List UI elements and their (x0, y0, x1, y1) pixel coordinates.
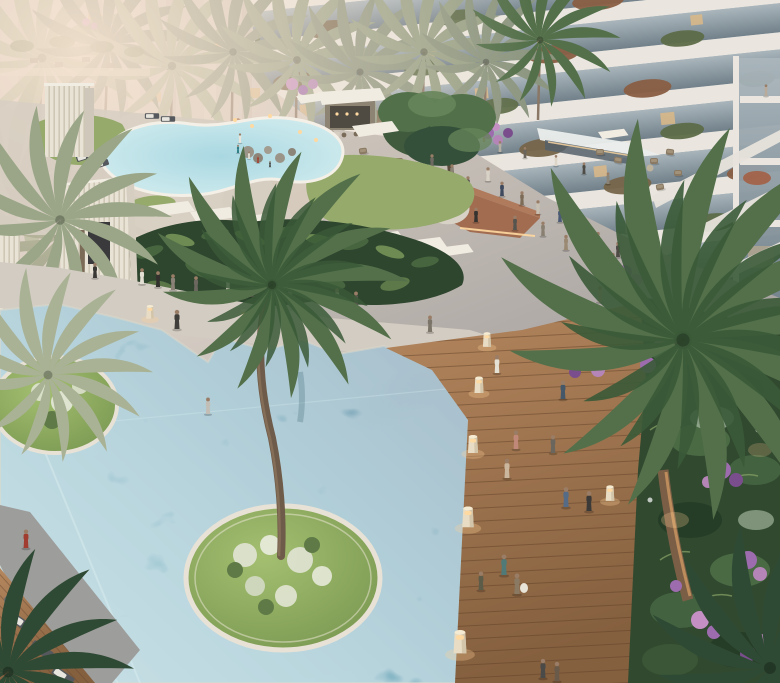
resort-rendering (0, 0, 780, 683)
shopping-bag (520, 583, 528, 593)
rendering-canvas (0, 0, 780, 683)
